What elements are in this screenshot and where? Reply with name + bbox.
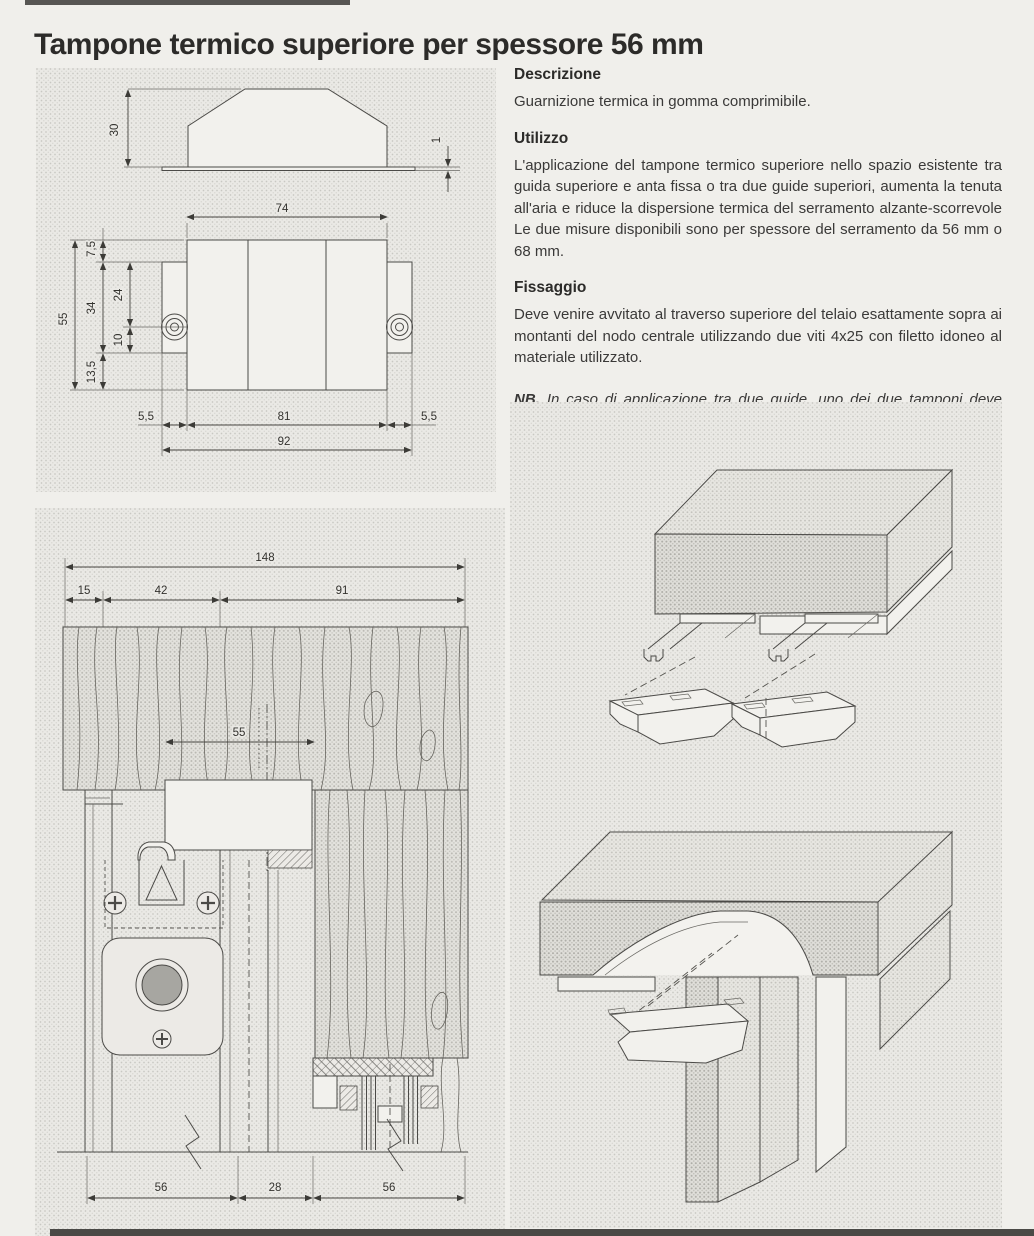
dim-55-pad-label: 55	[233, 727, 246, 739]
section-body: Deve venire avvitato al traverso superio…	[514, 304, 1002, 369]
section-heading: Descrizione	[514, 66, 1002, 84]
pad-dimension-figure: 30 1 74 55 7,5 34	[36, 68, 496, 492]
isometric-figures	[510, 402, 1002, 1228]
dim-34-label: 34	[86, 301, 98, 314]
dim-7-5-label: 7,5	[86, 241, 98, 257]
page-title: Tampone termico superiore per spessore 5…	[34, 28, 994, 62]
section-drawing-figure: 148 15 42 91 55	[35, 508, 505, 1236]
dim-91-label: 91	[336, 585, 349, 597]
pad-dimension-panel: 30 1 74 55 7,5 34	[36, 68, 496, 492]
dim-13-5-label: 13,5	[86, 361, 98, 383]
dim-92-label: 92	[278, 436, 291, 448]
screw-bottom-icon	[153, 1030, 171, 1048]
section-utilizzo: Utilizzo L'applicazione del tampone term…	[514, 130, 1002, 263]
section-heading: Utilizzo	[514, 130, 1002, 148]
dim-56-right-label: 56	[383, 1182, 396, 1194]
dim-28-label: 28	[269, 1182, 282, 1194]
dim-30-label: 30	[109, 124, 121, 137]
section-heading: Fissaggio	[514, 279, 1002, 297]
dim-1-label: 1	[431, 137, 443, 143]
dim-81-label: 81	[278, 411, 291, 423]
dim-5-5-left-label: 5,5	[138, 411, 154, 423]
scan-artifact-bottom	[50, 1229, 1034, 1236]
dim-74-label: 74	[276, 203, 289, 215]
screw-right-icon	[197, 892, 219, 914]
section-body: Guarnizione termica in gomma comprimibil…	[514, 91, 1002, 113]
dim-5-5-right-label: 5,5	[421, 411, 437, 423]
dim-55-label: 55	[58, 313, 70, 326]
section-drawing-panel: 148 15 42 91 55	[35, 508, 505, 1236]
dim-42-label: 42	[155, 585, 168, 597]
dim-148-label: 148	[255, 552, 274, 564]
scan-artifact-top	[25, 0, 350, 5]
dim-15-label: 15	[78, 585, 91, 597]
dim-24-label: 24	[113, 288, 125, 301]
section-fissaggio: Fissaggio Deve venire avvitato al traver…	[514, 279, 1002, 369]
description-column: Descrizione Guarnizione termica in gomma…	[514, 66, 1002, 453]
section-body: L'applicazione del tampone termico super…	[514, 155, 1002, 263]
dim-56-left-label: 56	[155, 1182, 168, 1194]
wood-jamb-section	[315, 790, 468, 1058]
screw-left-icon	[104, 892, 126, 914]
thermal-pad-section	[165, 780, 312, 850]
section-descrizione: Descrizione Guarnizione termica in gomma…	[514, 66, 1002, 113]
roller-section	[136, 959, 188, 1011]
wood-lintel-section	[63, 627, 468, 790]
dim-10-label: 10	[113, 334, 125, 347]
isometric-panel	[510, 402, 1002, 1228]
